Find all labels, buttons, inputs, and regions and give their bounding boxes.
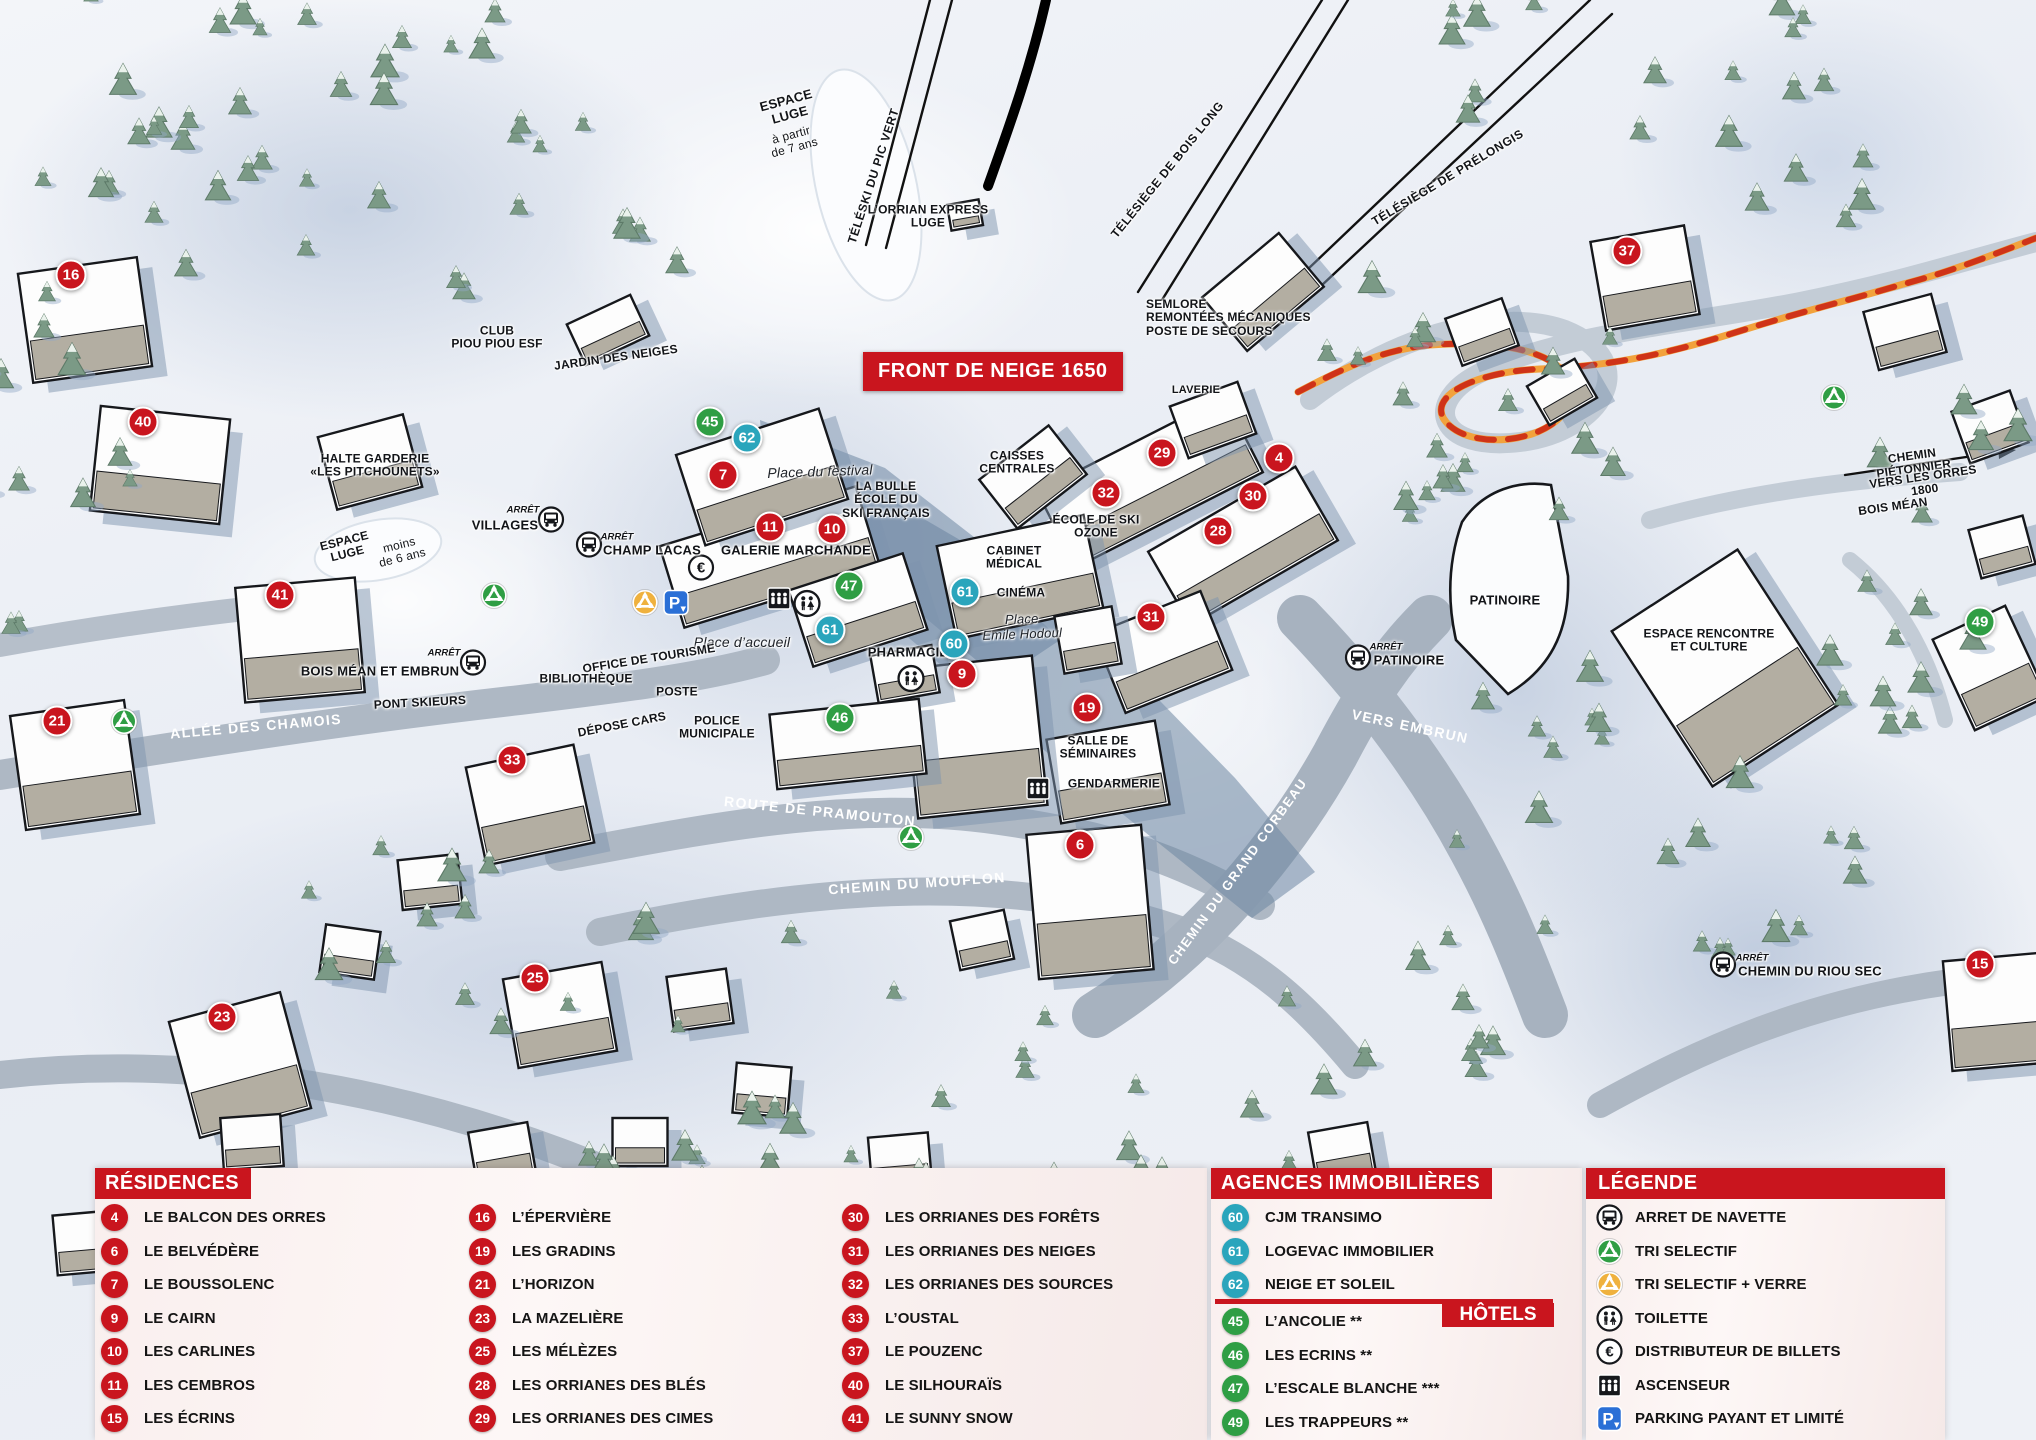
legend-marker-11: 11 xyxy=(101,1372,128,1399)
legend-marker-45: 45 xyxy=(1222,1308,1249,1335)
map-marker-9: 9 xyxy=(947,659,978,690)
map-label: PATINOIRE xyxy=(1470,594,1541,609)
legend-marker-62: 62 xyxy=(1222,1271,1249,1298)
map-label: SEMLORE REMONTÉES MÉCANIQUES POSTE DE SE… xyxy=(1146,298,1311,338)
map-marker-41: 41 xyxy=(265,580,296,611)
toilette-icon xyxy=(1595,1304,1623,1332)
map-label: GENDARMERIE xyxy=(1068,777,1160,790)
map-label: L’ORRIAN EXPRESS LUGE xyxy=(868,204,989,231)
legend-marker-30: 30 xyxy=(842,1204,869,1231)
legend-marker-49: 49 xyxy=(1222,1409,1249,1436)
residence-row: 31LES ORRIANES DES NEIGES xyxy=(842,1235,1203,1269)
map-marker-25: 25 xyxy=(520,963,551,994)
map-label: ESPACE RENCONTRE ET CULTURE xyxy=(1644,628,1775,655)
legend-marker-28: 28 xyxy=(469,1372,496,1399)
map-marker-62: 62 xyxy=(732,423,763,454)
residence-row: 41LE SUNNY SNOW xyxy=(842,1402,1203,1436)
legend-label: LES ECRINS ** xyxy=(1265,1347,1372,1364)
panel-residences-title: RÉSIDENCES xyxy=(95,1168,251,1199)
legende-row: ASCENSEUR xyxy=(1586,1369,1945,1403)
legend-label: LES ORRIANES DES FORÊTS xyxy=(885,1209,1100,1226)
map-marker-49: 49 xyxy=(1965,607,1996,638)
legende-label: ASCENSEUR xyxy=(1635,1377,1730,1394)
map-marker-6: 6 xyxy=(1065,830,1096,861)
legend-marker-25: 25 xyxy=(469,1338,496,1365)
map-label: ARRÊT xyxy=(1736,954,1769,965)
legend-label: LES MÉLÈZES xyxy=(512,1343,617,1360)
legend-marker-16: 16 xyxy=(469,1204,496,1231)
euro-icon: € xyxy=(688,554,715,586)
hotel-row: 49LES TRAPPEURS ** xyxy=(1211,1406,1582,1440)
legend-marker-47: 47 xyxy=(1222,1375,1249,1402)
legend-label: LES TRAPPEURS ** xyxy=(1265,1414,1408,1431)
residence-row: 6LE BELVÉDÈRE xyxy=(101,1235,465,1269)
map-label: BIBLIOTHÈQUE xyxy=(539,672,632,685)
residence-row: 37LE POUZENC xyxy=(842,1335,1203,1369)
panel-agences-title: AGENCES IMMOBILIÈRES xyxy=(1211,1168,1492,1199)
legende-label: ARRET DE NAVETTE xyxy=(1635,1209,1786,1226)
map-label: ÉCOLE DE SKI OZONE xyxy=(1052,514,1139,541)
panel-legende-title: LÉGENDE xyxy=(1586,1168,1945,1199)
panel-residences: RÉSIDENCES 4LE BALCON DES ORRES6LE BELVÉ… xyxy=(95,1168,1207,1440)
legend-label: LES ORRIANES DES CIMES xyxy=(512,1410,713,1427)
map-label: CLUB PIOU PIOU ESF xyxy=(451,325,542,352)
legend-label: LE BOUSSOLENC xyxy=(144,1276,274,1293)
map-marker-21: 21 xyxy=(42,706,73,737)
legend-label: LES CEMBROS xyxy=(144,1377,255,1394)
panel-agences: AGENCES IMMOBILIÈRES 60CJM TRANSIMO61LOG… xyxy=(1211,1168,1582,1440)
map-label: LA BULLE ÉCOLE DU SKI FRANÇAIS xyxy=(842,480,930,520)
legend-marker-60: 60 xyxy=(1222,1204,1249,1231)
svg-text:P: P xyxy=(1602,1410,1613,1429)
recycle-icon xyxy=(1821,384,1848,416)
map-marker-33: 33 xyxy=(497,745,528,776)
map-marker-60: 60 xyxy=(939,629,970,660)
map-marker-46: 46 xyxy=(825,703,856,734)
svg-text:€: € xyxy=(1605,1344,1614,1361)
legend-label: L’HORIZON xyxy=(512,1276,595,1293)
legende-label: DISTRIBUTEUR DE BILLETS xyxy=(1635,1343,1841,1360)
bus-icon xyxy=(1710,951,1737,983)
toilette-icon xyxy=(897,665,925,698)
residence-row: 33L’OUSTAL xyxy=(842,1302,1203,1336)
map-label: ARRÊT xyxy=(1370,643,1403,654)
euro-icon: € xyxy=(1595,1338,1623,1366)
residences-column-2: 16L’ÉPERVIÈRE19LES GRADINS21L’HORIZON23L… xyxy=(465,1201,838,1436)
legend-label: LA MAZELIÈRE xyxy=(512,1310,623,1327)
recycle-icon xyxy=(481,582,508,614)
map-label: CABINET MÉDICAL xyxy=(986,545,1042,572)
bus-icon xyxy=(538,506,565,538)
legend-label: LES ORRIANES DES BLÉS xyxy=(512,1377,706,1394)
map-label: CHEMIN DU RIOU SEC xyxy=(1738,965,1882,980)
residence-row: 4LE BALCON DES ORRES xyxy=(101,1201,465,1235)
map-marker-4: 4 xyxy=(1264,443,1295,474)
map-marker-45: 45 xyxy=(695,407,726,438)
map-marker-28: 28 xyxy=(1203,516,1234,547)
legend-label: L’ÉPERVIÈRE xyxy=(512,1209,611,1226)
parking-icon: P xyxy=(663,589,690,621)
ascenseur-icon xyxy=(1595,1371,1623,1399)
legende-row: €DISTRIBUTEUR DE BILLETS xyxy=(1586,1335,1945,1369)
residence-row: 25LES MÉLÈZES xyxy=(469,1335,838,1369)
legend-marker-4: 4 xyxy=(101,1204,128,1231)
map-marker-16: 16 xyxy=(56,260,87,291)
legend-marker-9: 9 xyxy=(101,1305,128,1332)
map-label: SALLE DE SÉMINAIRES xyxy=(1060,735,1137,762)
residence-row: 15LES ÉCRINS xyxy=(101,1402,465,1436)
map-label: POLICE MUNICIPALE xyxy=(679,715,755,742)
map-marker-47: 47 xyxy=(834,571,865,602)
legend-marker-37: 37 xyxy=(842,1338,869,1365)
residences-list: 4LE BALCON DES ORRES6LE BELVÉDÈRE7LE BOU… xyxy=(95,1199,1207,1436)
recycle-icon xyxy=(111,708,138,740)
legend-label: LOGEVAC IMMOBILIER xyxy=(1265,1243,1434,1260)
map-marker-23: 23 xyxy=(207,1002,238,1033)
residence-row: 21L’HORIZON xyxy=(469,1268,838,1302)
toilette-icon xyxy=(793,590,821,623)
map-label: PATINOIRE xyxy=(1374,654,1445,669)
legend-marker-21: 21 xyxy=(469,1271,496,1298)
legend-label: L’OUSTAL xyxy=(885,1310,959,1327)
map-label: POSTE xyxy=(656,685,698,698)
bus-icon xyxy=(1595,1204,1623,1232)
ascenseur-icon xyxy=(766,585,793,617)
legend-label: LES ORRIANES DES NEIGES xyxy=(885,1243,1096,1260)
map-marker-19: 19 xyxy=(1072,693,1103,724)
legende-row: P PARKING PAYANT ET LIMITÉ xyxy=(1586,1402,1945,1436)
legend-marker-40: 40 xyxy=(842,1372,869,1399)
residence-row: 9LE CAIRN xyxy=(101,1302,465,1336)
legende-row: TRI SELECTIF xyxy=(1586,1235,1945,1269)
legend-marker-19: 19 xyxy=(469,1238,496,1265)
map-label: CINÉMA xyxy=(997,586,1046,599)
legend-marker-6: 6 xyxy=(101,1238,128,1265)
panel-legende: LÉGENDE ARRET DE NAVETTE TRI SELECTIF TR… xyxy=(1586,1168,1945,1440)
legend-label: L’ESCALE BLANCHE *** xyxy=(1265,1380,1440,1397)
residence-row: 40LE SILHOURAÏS xyxy=(842,1369,1203,1403)
map-marker-7: 7 xyxy=(708,460,739,491)
legende-row: TRI SELECTIF + VERRE xyxy=(1586,1268,1945,1302)
legende-label: PARKING PAYANT ET LIMITÉ xyxy=(1635,1410,1844,1427)
legend-label: NEIGE ET SOLEIL xyxy=(1265,1276,1395,1293)
map-marker-30: 30 xyxy=(1238,481,1269,512)
legend-label: L’ANCOLIE ** xyxy=(1265,1313,1362,1330)
bus-icon xyxy=(460,649,487,681)
legend-label: LE BALCON DES ORRES xyxy=(144,1209,326,1226)
legend-marker-15: 15 xyxy=(101,1405,128,1432)
legende-row: TOILETTE xyxy=(1586,1302,1945,1336)
map-label: ARRÊT xyxy=(507,506,540,517)
legende-label: TOILETTE xyxy=(1635,1310,1708,1327)
map-label: Place Emile Hodoul xyxy=(982,611,1063,643)
recycle-verre-icon xyxy=(632,589,659,621)
recycle-verre-icon xyxy=(1595,1271,1623,1299)
map-label: GALERIE MARCHANDE xyxy=(721,544,871,559)
hotel-row: 46LES ECRINS ** xyxy=(1211,1339,1582,1373)
legend-marker-10: 10 xyxy=(101,1338,128,1365)
map-label: LAVERIE xyxy=(1172,384,1220,396)
map-label: CHAMP LACAS xyxy=(603,544,701,559)
legend-label: LE SUNNY SNOW xyxy=(885,1410,1013,1427)
map-label: ARRÊT xyxy=(601,533,634,544)
recycle-icon xyxy=(1595,1237,1623,1265)
legend-marker-29: 29 xyxy=(469,1405,496,1432)
residence-row: 16L’ÉPERVIÈRE xyxy=(469,1201,838,1235)
map-marker-61: 61 xyxy=(815,615,846,646)
residence-row: 29LES ORRIANES DES CIMES xyxy=(469,1402,838,1436)
residences-column-1: 4LE BALCON DES ORRES6LE BELVÉDÈRE7LE BOU… xyxy=(95,1201,465,1436)
agence-row: 61LOGEVAC IMMOBILIER xyxy=(1211,1235,1582,1269)
legend-label: LES ÉCRINS xyxy=(144,1410,235,1427)
svg-text:P: P xyxy=(669,594,680,613)
residence-row: 32LES ORRIANES DES SOURCES xyxy=(842,1268,1203,1302)
legend-marker-23: 23 xyxy=(469,1305,496,1332)
legende-label: TRI SELECTIF xyxy=(1635,1243,1737,1260)
legende-row: ARRET DE NAVETTE xyxy=(1586,1201,1945,1235)
map-label: CAISSES CENTRALES xyxy=(979,450,1054,477)
bus-icon xyxy=(1345,644,1372,676)
legend-marker-31: 31 xyxy=(842,1238,869,1265)
svg-text:€: € xyxy=(697,560,706,577)
residence-row: 28LES ORRIANES DES BLÉS xyxy=(469,1369,838,1403)
map-marker-15: 15 xyxy=(1965,949,1996,980)
legend-label: CJM TRANSIMO xyxy=(1265,1209,1382,1226)
legend-marker-46: 46 xyxy=(1222,1342,1249,1369)
agence-row: 60CJM TRANSIMO xyxy=(1211,1201,1582,1235)
panel-hotels-title: HÔTELS xyxy=(1442,1303,1554,1327)
map-label: BOIS MÉAN ET EMBRUN xyxy=(301,665,459,680)
residences-column-3: 30LES ORRIANES DES FORÊTS31LES ORRIANES … xyxy=(838,1201,1203,1436)
agence-row: 62NEIGE ET SOLEIL xyxy=(1211,1268,1582,1302)
legend-label: LE POUZENC xyxy=(885,1343,983,1360)
map-marker-40: 40 xyxy=(128,407,159,438)
hotel-row: 47L’ESCALE BLANCHE *** xyxy=(1211,1372,1582,1406)
map-marker-29: 29 xyxy=(1147,438,1178,469)
map-marker-31: 31 xyxy=(1136,602,1167,633)
map-label: VILLAGES xyxy=(472,519,539,534)
legend-label: LE SILHOURAÏS xyxy=(885,1377,1002,1394)
legend-marker-41: 41 xyxy=(842,1405,869,1432)
residence-row: 10LES CARLINES xyxy=(101,1335,465,1369)
residence-row: 23LA MAZELIÈRE xyxy=(469,1302,838,1336)
resort-map: € P ESPACE LUGEà partir de 7 ansTÉLÉSKI … xyxy=(0,0,2036,1440)
front-de-neige-banner: FRONT DE NEIGE 1650 xyxy=(863,352,1123,391)
legend-label: LE CAIRN xyxy=(144,1310,216,1327)
agences-list: 60CJM TRANSIMO61LOGEVAC IMMOBILIER62NEIG… xyxy=(1211,1199,1582,1302)
legend-label: LE BELVÉDÈRE xyxy=(144,1243,259,1260)
residence-row: 19LES GRADINS xyxy=(469,1235,838,1269)
map-label: PHARMACIE xyxy=(868,646,949,661)
legend-label: LES ORRIANES DES SOURCES xyxy=(885,1276,1113,1293)
residence-row: 30LES ORRIANES DES FORÊTS xyxy=(842,1201,1203,1235)
legend-marker-7: 7 xyxy=(101,1271,128,1298)
legende-label: TRI SELECTIF + VERRE xyxy=(1635,1276,1807,1293)
map-marker-32: 32 xyxy=(1091,478,1122,509)
legend-marker-32: 32 xyxy=(842,1271,869,1298)
legend-label: LES GRADINS xyxy=(512,1243,616,1260)
map-marker-37: 37 xyxy=(1612,236,1643,267)
legend-marker-61: 61 xyxy=(1222,1238,1249,1265)
map-label: ARRÊT xyxy=(428,649,461,660)
map-marker-11: 11 xyxy=(755,512,786,543)
parking-icon: P xyxy=(1595,1405,1623,1433)
map-label: HALTE GARDERIE «LES PITCHOUNETS» xyxy=(310,453,439,480)
map-marker-10: 10 xyxy=(817,514,848,545)
residence-row: 11LES CEMBROS xyxy=(101,1369,465,1403)
ascenseur-icon xyxy=(1025,775,1052,807)
legende-list: ARRET DE NAVETTE TRI SELECTIF TRI SELECT… xyxy=(1586,1199,1945,1436)
map-marker-61: 61 xyxy=(950,577,981,608)
legend-label: LES CARLINES xyxy=(144,1343,255,1360)
residence-row: 7LE BOUSSOLENC xyxy=(101,1268,465,1302)
bus-icon xyxy=(576,531,603,563)
legend-marker-33: 33 xyxy=(842,1305,869,1332)
